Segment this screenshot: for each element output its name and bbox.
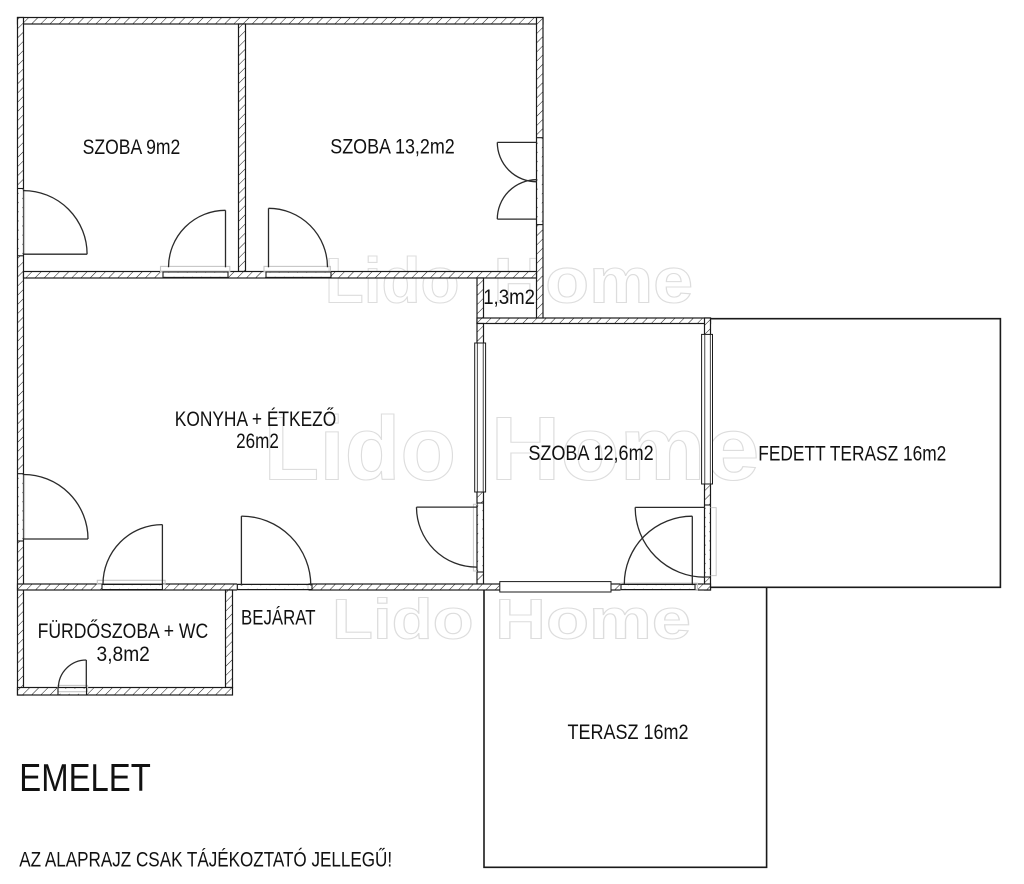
svg-text:BEJÁRAT: BEJÁRAT	[241, 607, 316, 630]
svg-text:SZOBA 9m2: SZOBA 9m2	[83, 136, 181, 159]
svg-text:Lido: Lido	[325, 245, 460, 317]
svg-text:Lido: Lido	[332, 588, 474, 652]
svg-text:AZ ALAPRAJZ CSAK TÁJÉKOZTATÓ J: AZ ALAPRAJZ CSAK TÁJÉKOZTATÓ JELLEGŰ!	[19, 848, 392, 871]
svg-text:1,3m2: 1,3m2	[483, 286, 535, 309]
svg-text:26m2: 26m2	[236, 430, 279, 453]
svg-text:SZOBA 13,2m2: SZOBA 13,2m2	[330, 135, 455, 158]
svg-text:Home: Home	[495, 588, 691, 652]
svg-text:3,8m2: 3,8m2	[97, 643, 150, 666]
svg-text:FÜRDŐSZOBA + WC: FÜRDŐSZOBA + WC	[38, 620, 209, 643]
svg-text:KONYHA + ÉTKEZŐ: KONYHA + ÉTKEZŐ	[175, 408, 337, 431]
svg-text:FEDETT TERASZ 16m2: FEDETT TERASZ 16m2	[758, 443, 946, 466]
svg-text:SZOBA 12,6m2: SZOBA 12,6m2	[528, 442, 653, 465]
svg-text:TERASZ 16m2: TERASZ 16m2	[568, 721, 689, 744]
svg-text:EMELET: EMELET	[19, 757, 151, 800]
